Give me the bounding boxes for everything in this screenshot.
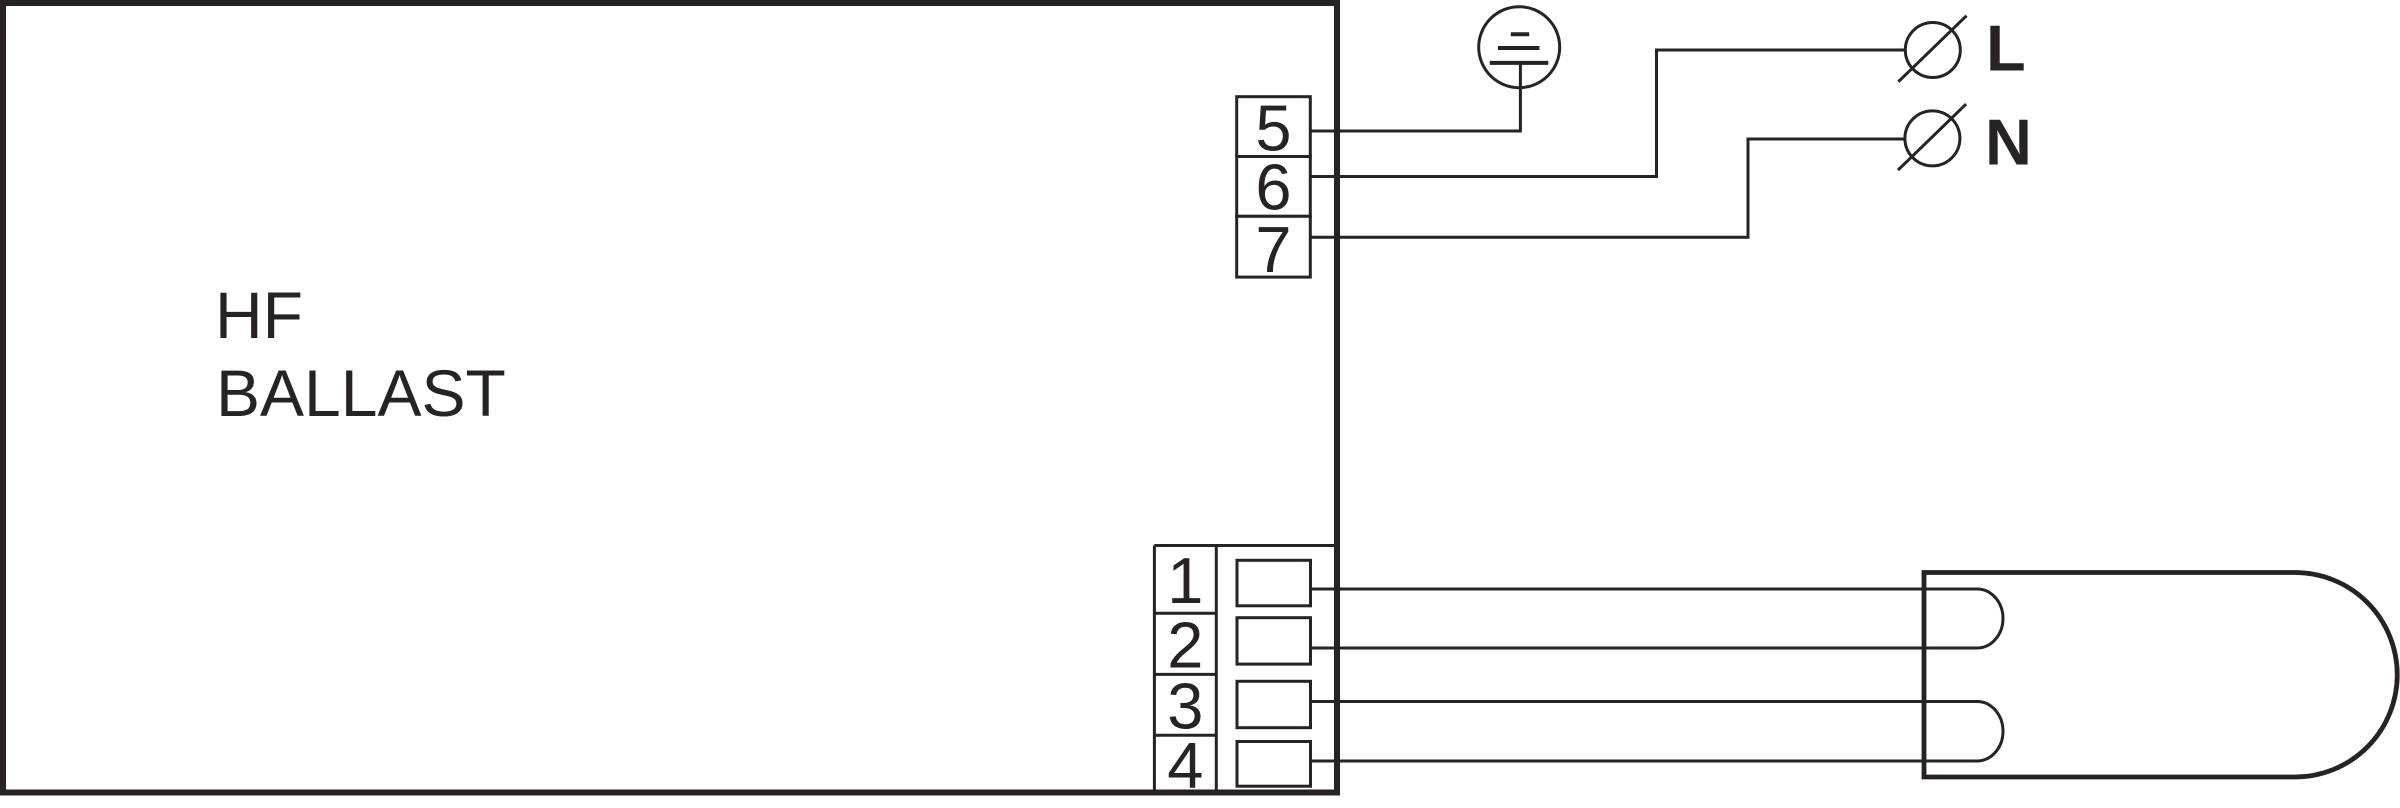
svg-text:N: N	[1985, 106, 2032, 179]
svg-text:4: 4	[1167, 729, 1203, 802]
svg-text:BALLAST: BALLAST	[216, 356, 506, 430]
svg-text:1: 1	[1167, 544, 1203, 617]
svg-text:HF: HF	[215, 278, 303, 352]
svg-text:7: 7	[1255, 213, 1291, 286]
svg-text:L: L	[1986, 11, 2026, 84]
